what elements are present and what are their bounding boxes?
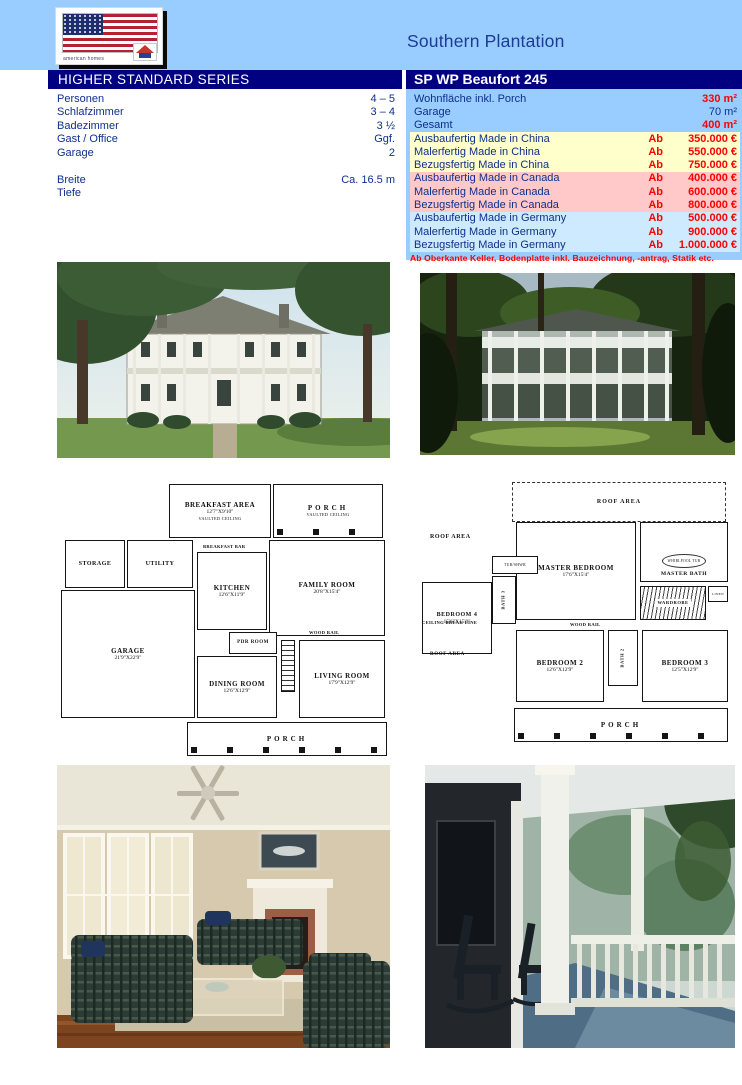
spec-row: Garage2 [57, 146, 395, 160]
spec-label: Tiefe [57, 187, 395, 199]
room-family: FAMILY ROOM 20'8"X15'4" [269, 540, 385, 636]
spec-row: Gast / OfficeGgf. [57, 133, 395, 147]
area-label: Gesamt [414, 119, 702, 131]
spec-value: 3 ½ [377, 120, 395, 132]
model-bar: SP WP Beaufort 245 [406, 70, 742, 89]
spec-row: Schlafzimmer3 – 4 [57, 106, 395, 120]
price-label: Malerfertig Made in Canada [414, 186, 639, 198]
room-storage: STORAGE [65, 540, 125, 588]
spec-row-blank [57, 160, 395, 174]
stairs [281, 640, 295, 692]
house-photo-art [420, 273, 735, 455]
linen-closet: LINEN [708, 586, 728, 602]
room-bedroom3: BEDROOM 3 12'5"X12'9" [642, 630, 728, 702]
house-illustration-art [57, 262, 390, 458]
spec-value: Ggf. [374, 133, 395, 145]
spec-row: BreiteCa. 16.5 m [57, 173, 395, 187]
label-wood-rail: WOOD RAIL [309, 630, 339, 635]
room-bath2: BATH 2 [608, 630, 638, 686]
area-row: Garage70 m² [410, 105, 740, 118]
price-row-germany: Malerfertig Made in GermanyAb900.000 € [410, 225, 740, 238]
room-porch-2: PORCH [514, 708, 728, 742]
price-disclaimer: Ab Oberkante Keller, Bodenplatte inkl. B… [410, 253, 742, 263]
spec-row: Personen4 – 5 [57, 92, 395, 106]
specs-left-table: Personen4 – 5 Schlafzimmer3 – 4 Badezimm… [57, 92, 395, 200]
price-amount: 600.000 € [663, 186, 737, 198]
series-bar: HIGHER STANDARD SERIES [48, 70, 402, 89]
area-value: 400 m² [702, 119, 737, 131]
price-amount: 500.000 € [663, 212, 737, 224]
price-label: Malerfertig Made in China [414, 146, 639, 158]
room-bath3: BATH 3 [492, 576, 516, 624]
roof-area-left-lower: ROOF AREA [430, 652, 465, 657]
room-breakfast-area: BREAKFAST AREA 12'7"X9'10" VAULTED CEILI… [169, 484, 271, 538]
house-illustration [57, 262, 390, 458]
area-row: Gesamt400 m² [410, 119, 740, 132]
price-row-germany: Bezugsfertig Made in GermanyAb1.000.000 … [410, 238, 740, 251]
american-homes-logo: american homes [55, 7, 163, 65]
badge-roof-icon [136, 45, 154, 53]
roof-area-left: ROOF AREA [430, 534, 471, 540]
logo-text: american homes [63, 56, 104, 62]
price-row-china: Bezugsfertig Made in ChinaAb750.000 € [410, 158, 740, 171]
spec-label: Breite [57, 174, 341, 186]
room-utility: UTILITY [127, 540, 193, 588]
room-living: LIVING ROOM 17'9"X12'9" [299, 640, 385, 718]
spec-label: Schlafzimmer [57, 106, 371, 118]
spec-label: Gast / Office [57, 133, 374, 145]
spec-row: Badezimmer3 ½ [57, 119, 395, 133]
price-amount: 900.000 € [663, 226, 737, 238]
price-row-germany: Ausbaufertig Made in GermanyAb500.000 € [410, 212, 740, 225]
price-amount: 350.000 € [663, 133, 737, 145]
spec-label: Personen [57, 93, 371, 105]
area-label: Garage [414, 106, 709, 118]
room-bedroom2: BEDROOM 2 12'6"X12'9" [516, 630, 604, 702]
price-label: Ausbaufertig Made in Germany [414, 212, 639, 224]
price-amount: 750.000 € [663, 159, 737, 171]
spec-value: 3 – 4 [371, 106, 395, 118]
roof-area-top: ROOF AREA [512, 482, 726, 522]
area-value: 70 m² [709, 106, 737, 118]
label-wood-rail-2: WOOD RAIL [570, 622, 600, 627]
porch-photo-art [425, 765, 735, 1048]
floor-plan-second: ROOF AREA ROOF AREA MASTER BEDROOM 17'6"… [420, 478, 735, 760]
price-row-canada: Malerfertig Made in CanadaAb600.000 € [410, 185, 740, 198]
price-label: Ausbaufertig Made in China [414, 133, 639, 145]
price-amount: 550.000 € [663, 146, 737, 158]
room-pdr: PDR ROOM [229, 632, 277, 654]
area-value: 330 m² [702, 93, 737, 105]
label-breakfast-bar: BREAKFAST BAR [203, 544, 245, 549]
spec-value: Ca. 16.5 m [341, 174, 395, 186]
house-photo [420, 273, 735, 455]
price-amount: 1.000.000 € [663, 239, 737, 251]
floor-plan-first: BREAKFAST AREA 12'7"X9'10" VAULTED CEILI… [57, 478, 390, 760]
interior-photo-art [57, 765, 390, 1048]
room-garage: GARAGE 21'9"X22'9" [61, 590, 195, 718]
room-porch-bottom: PORCH [187, 722, 387, 756]
spec-value: 4 – 5 [371, 93, 395, 105]
price-row-canada: Bezugsfertig Made in CanadaAb800.000 € [410, 198, 740, 211]
price-amount: 800.000 € [663, 199, 737, 211]
wardrobe: WARDROBE [640, 586, 706, 620]
room-dining: DINING ROOM 12'6"X12'9" [197, 656, 277, 718]
price-label: Malerfertig Made in Germany [414, 226, 639, 238]
spec-row: Tiefe [57, 187, 395, 201]
flag-canton-stars [63, 14, 103, 35]
price-row-china: Malerfertig Made in ChinaAb550.000 € [410, 145, 740, 158]
price-label: Bezugsfertig Made in Canada [414, 199, 639, 211]
porch-photo [425, 765, 735, 1048]
page-title: Southern Plantation [407, 31, 565, 52]
house-badge-icon [133, 43, 157, 61]
area-label: Wohnfläche inkl. Porch [414, 93, 702, 105]
fixture-tub-shower: TUB/SHWR [492, 556, 538, 574]
interior-photo [57, 765, 390, 1048]
spec-label: Badezimmer [57, 120, 377, 132]
price-row-canada: Ausbaufertig Made in CanadaAb400.000 € [410, 172, 740, 185]
price-label: Bezugsfertig Made in China [414, 159, 639, 171]
room-master-bath: WHIRLPOOL TUB MASTER BATH [640, 522, 728, 582]
room-porch-top: PORCH VAULTED CEILING [273, 484, 383, 538]
price-amount: 400.000 € [663, 172, 737, 184]
room-bedroom4: BEDROOM 4 15'6"X15'0" [422, 582, 492, 654]
area-row: Wohnfläche inkl. Porch330 m² [410, 92, 740, 105]
price-label: Bezugsfertig Made in Germany [414, 239, 639, 251]
brochure-page: american homes Southern Plantation HIGHE… [0, 0, 742, 1085]
spec-label: Garage [57, 147, 389, 159]
specs-right-table: Wohnfläche inkl. Porch330 m² Garage70 m²… [410, 92, 740, 252]
spec-value: 2 [389, 147, 395, 159]
price-row-china: Ausbaufertig Made in ChinaAb350.000 € [410, 132, 740, 145]
price-label: Ausbaufertig Made in Canada [414, 172, 639, 184]
room-kitchen: KITCHEN 12'6"X11'9" [197, 552, 267, 630]
badge-base-icon [139, 53, 151, 58]
label-ceiling-break: CEILING BREAK LINE [422, 620, 477, 625]
